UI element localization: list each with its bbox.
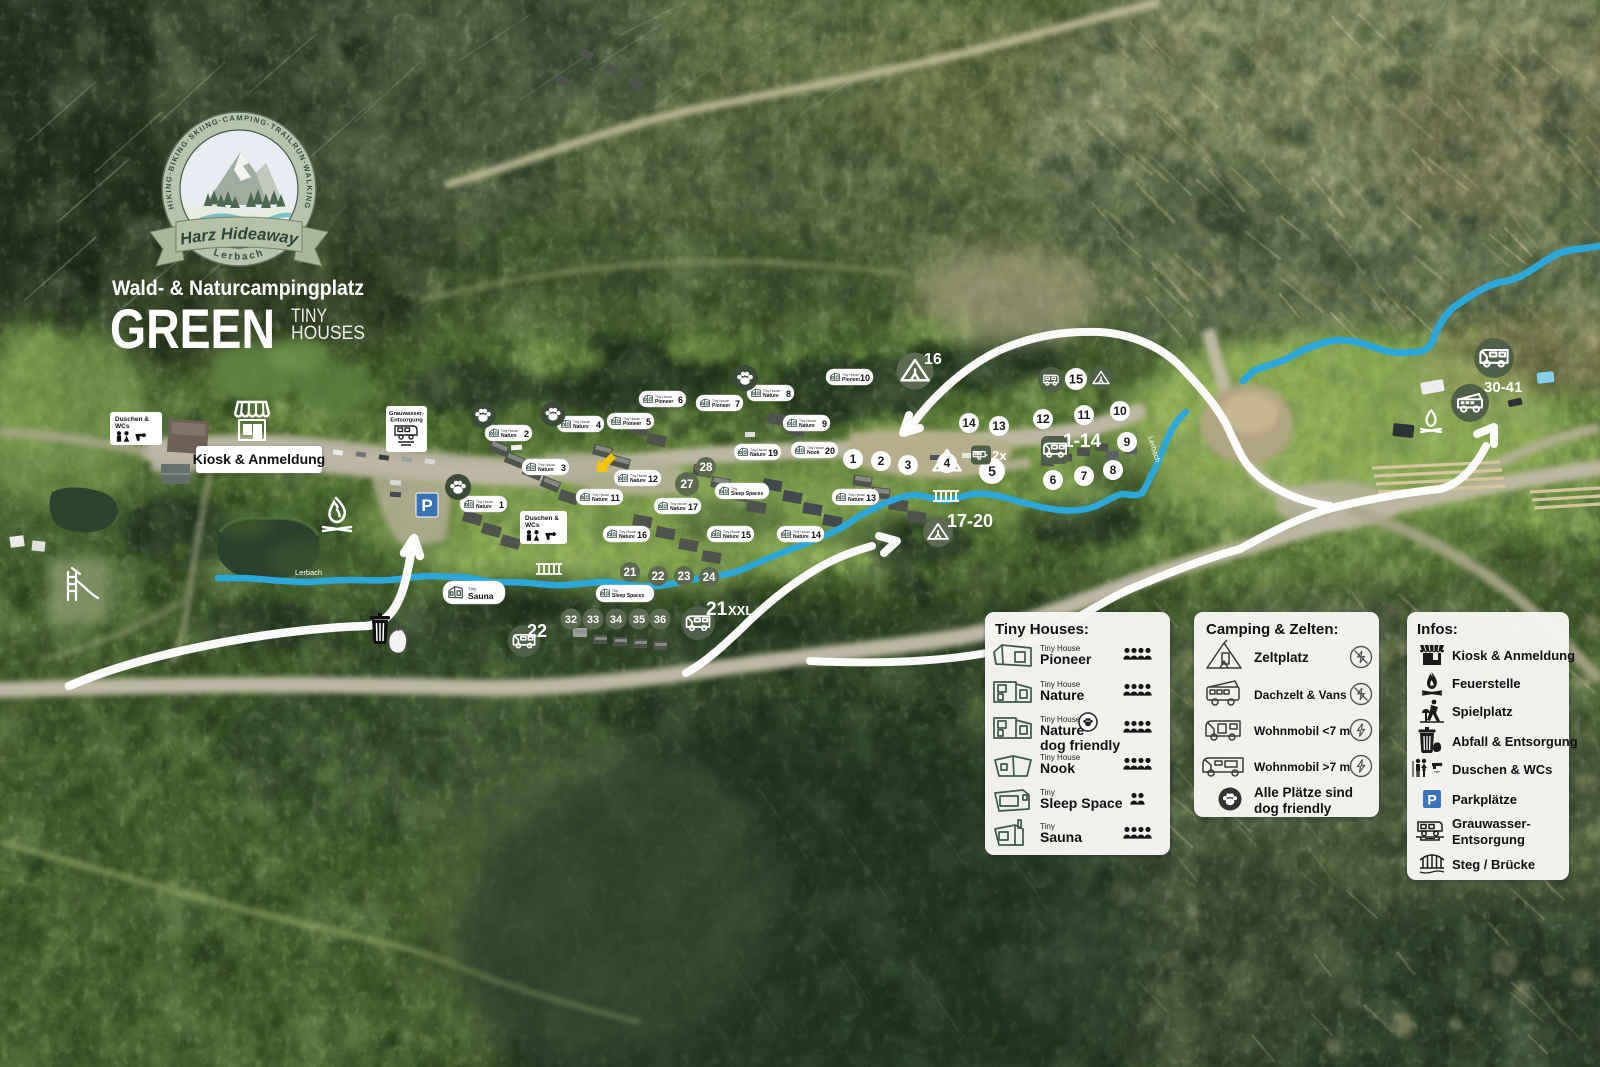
svg-text:17: 17 (688, 502, 698, 512)
svg-text:34: 34 (610, 614, 623, 626)
svg-text:10: 10 (1113, 404, 1127, 418)
svg-text:28: 28 (700, 462, 713, 474)
svg-text:Nature: Nature (592, 497, 608, 503)
svg-text:P: P (1427, 792, 1436, 808)
svg-text:6: 6 (1050, 473, 1057, 487)
svg-text:5: 5 (646, 417, 651, 427)
svg-text:XXL: XXL (728, 603, 753, 618)
svg-text:Nature: Nature (750, 452, 766, 458)
svg-text:Nature: Nature (630, 478, 646, 484)
svg-text:WCs: WCs (525, 522, 540, 529)
svg-text:3: 3 (561, 463, 566, 473)
svg-text:36: 36 (654, 614, 666, 626)
svg-text:8: 8 (1110, 463, 1117, 477)
svg-text:Grauwasser-: Grauwasser- (1452, 816, 1531, 831)
svg-text:Nature: Nature (501, 433, 517, 439)
svg-text:9: 9 (822, 419, 827, 429)
svg-text:2: 2 (524, 429, 529, 439)
svg-text:2x: 2x (992, 448, 1007, 463)
svg-text:Alle Plätze sind: Alle Plätze sind (1254, 785, 1353, 800)
svg-text:4: 4 (596, 420, 601, 430)
svg-text:Tiny Houses:: Tiny Houses: (995, 621, 1089, 638)
svg-text:Camping & Zelten:: Camping & Zelten: (1206, 621, 1339, 638)
svg-text:Pioneer: Pioneer (1040, 651, 1092, 667)
svg-text:Infos:: Infos: (1417, 621, 1458, 638)
svg-text:13: 13 (866, 493, 876, 503)
svg-text:30-41: 30-41 (1484, 379, 1522, 396)
svg-text:35: 35 (633, 614, 645, 626)
svg-text:12: 12 (1036, 412, 1050, 426)
svg-text:dog friendly: dog friendly (1040, 737, 1120, 753)
svg-text:Pioneer: Pioneer (623, 421, 641, 427)
svg-text:20: 20 (825, 446, 835, 456)
svg-text:7: 7 (1081, 469, 1088, 483)
svg-text:2: 2 (878, 454, 885, 468)
svg-text:23: 23 (678, 571, 691, 583)
svg-text:Nature: Nature (723, 534, 739, 540)
svg-text:Nature: Nature (799, 423, 815, 429)
svg-text:Entsorgung: Entsorgung (1452, 832, 1525, 847)
svg-text:Kiosk & Anmeldung: Kiosk & Anmeldung (193, 451, 326, 467)
svg-text:Steg / Brücke: Steg / Brücke (1452, 857, 1535, 872)
svg-text:Abfall & Entsorgung: Abfall & Entsorgung (1452, 734, 1578, 749)
svg-text:12: 12 (648, 474, 658, 484)
svg-text:32: 32 (565, 614, 577, 626)
svg-text:3: 3 (905, 458, 912, 472)
svg-text:Lerbach: Lerbach (295, 568, 322, 577)
svg-text:Pioneer: Pioneer (712, 403, 730, 409)
svg-text:14: 14 (811, 530, 821, 540)
svg-text:16: 16 (924, 351, 942, 368)
svg-text:Nature: Nature (763, 393, 779, 399)
svg-text:17-20: 17-20 (947, 511, 993, 531)
svg-text:Nature: Nature (476, 504, 492, 510)
svg-text:16: 16 (637, 530, 647, 540)
svg-text:4: 4 (944, 456, 951, 470)
svg-text:P: P (421, 496, 432, 515)
svg-text:10: 10 (860, 373, 870, 383)
svg-text:14: 14 (962, 416, 976, 430)
svg-text:21: 21 (706, 599, 728, 620)
svg-text:27: 27 (680, 477, 694, 491)
svg-text:Spielplatz: Spielplatz (1452, 704, 1513, 719)
svg-text:Zeltplatz: Zeltplatz (1254, 650, 1309, 665)
svg-text:Duschen &: Duschen & (115, 416, 149, 423)
svg-text:9: 9 (1124, 435, 1131, 449)
svg-text:Nature: Nature (793, 534, 809, 540)
svg-text:Sauna: Sauna (1040, 829, 1082, 845)
svg-text:Pioneer: Pioneer (842, 377, 860, 383)
svg-text:5: 5 (988, 463, 996, 479)
svg-text:11: 11 (610, 493, 620, 503)
svg-text:8: 8 (786, 389, 791, 399)
svg-text:WCs: WCs (115, 423, 130, 430)
svg-text:Pioneer: Pioneer (655, 399, 673, 405)
svg-text:Nature: Nature (619, 534, 635, 540)
svg-text:Sleep Space: Sleep Space (1040, 795, 1123, 811)
svg-text:Dachzelt & Vans: Dachzelt & Vans (1254, 688, 1347, 702)
svg-text:33: 33 (587, 614, 599, 626)
svg-text:15: 15 (741, 530, 751, 540)
svg-text:Feuerstelle: Feuerstelle (1452, 676, 1521, 691)
svg-text:Kiosk & Anmeldung: Kiosk & Anmeldung (1452, 648, 1575, 663)
svg-text:1-14: 1-14 (1063, 431, 1101, 452)
svg-text:22: 22 (527, 621, 547, 641)
svg-text:22: 22 (652, 571, 665, 583)
svg-text:HOUSES: HOUSES (291, 323, 365, 344)
svg-text:1: 1 (850, 452, 857, 466)
svg-text:6: 6 (678, 395, 683, 405)
svg-text:Nature: Nature (1040, 687, 1085, 703)
svg-text:Nature: Nature (573, 424, 589, 430)
svg-text:Sleep Spaces: Sleep Spaces (731, 491, 763, 497)
svg-text:Nature: Nature (670, 506, 686, 512)
svg-text:Duschen & WCs: Duschen & WCs (1452, 762, 1552, 777)
svg-text:Nature: Nature (848, 497, 864, 503)
svg-text:24: 24 (703, 572, 716, 584)
svg-text:Sauna: Sauna (468, 591, 494, 601)
svg-text:1: 1 (499, 500, 504, 510)
svg-text:Grauwasser-: Grauwasser- (389, 411, 424, 417)
svg-text:Entsorgung: Entsorgung (390, 418, 423, 424)
svg-text:21: 21 (624, 567, 637, 579)
svg-text:Nature: Nature (1040, 722, 1085, 738)
svg-text:13: 13 (992, 419, 1006, 433)
svg-text:Duschen &: Duschen & (525, 515, 559, 522)
svg-text:Wohnmobil >7 m: Wohnmobil >7 m (1254, 760, 1350, 774)
svg-text:Nook: Nook (1040, 760, 1075, 776)
svg-text:Sleep Spaces: Sleep Spaces (612, 593, 644, 599)
svg-text:19: 19 (768, 448, 778, 458)
svg-text:Nook: Nook (807, 450, 820, 456)
svg-text:Wohnmobil <7 m: Wohnmobil <7 m (1254, 724, 1350, 738)
svg-text:11: 11 (1078, 408, 1091, 422)
svg-text:GREEN: GREEN (110, 297, 275, 360)
svg-text:7: 7 (735, 399, 740, 409)
svg-text:Nature: Nature (538, 467, 554, 473)
svg-text:dog friendly: dog friendly (1254, 801, 1332, 816)
svg-text:Parkplätze: Parkplätze (1452, 792, 1517, 807)
svg-text:15: 15 (1069, 372, 1083, 387)
